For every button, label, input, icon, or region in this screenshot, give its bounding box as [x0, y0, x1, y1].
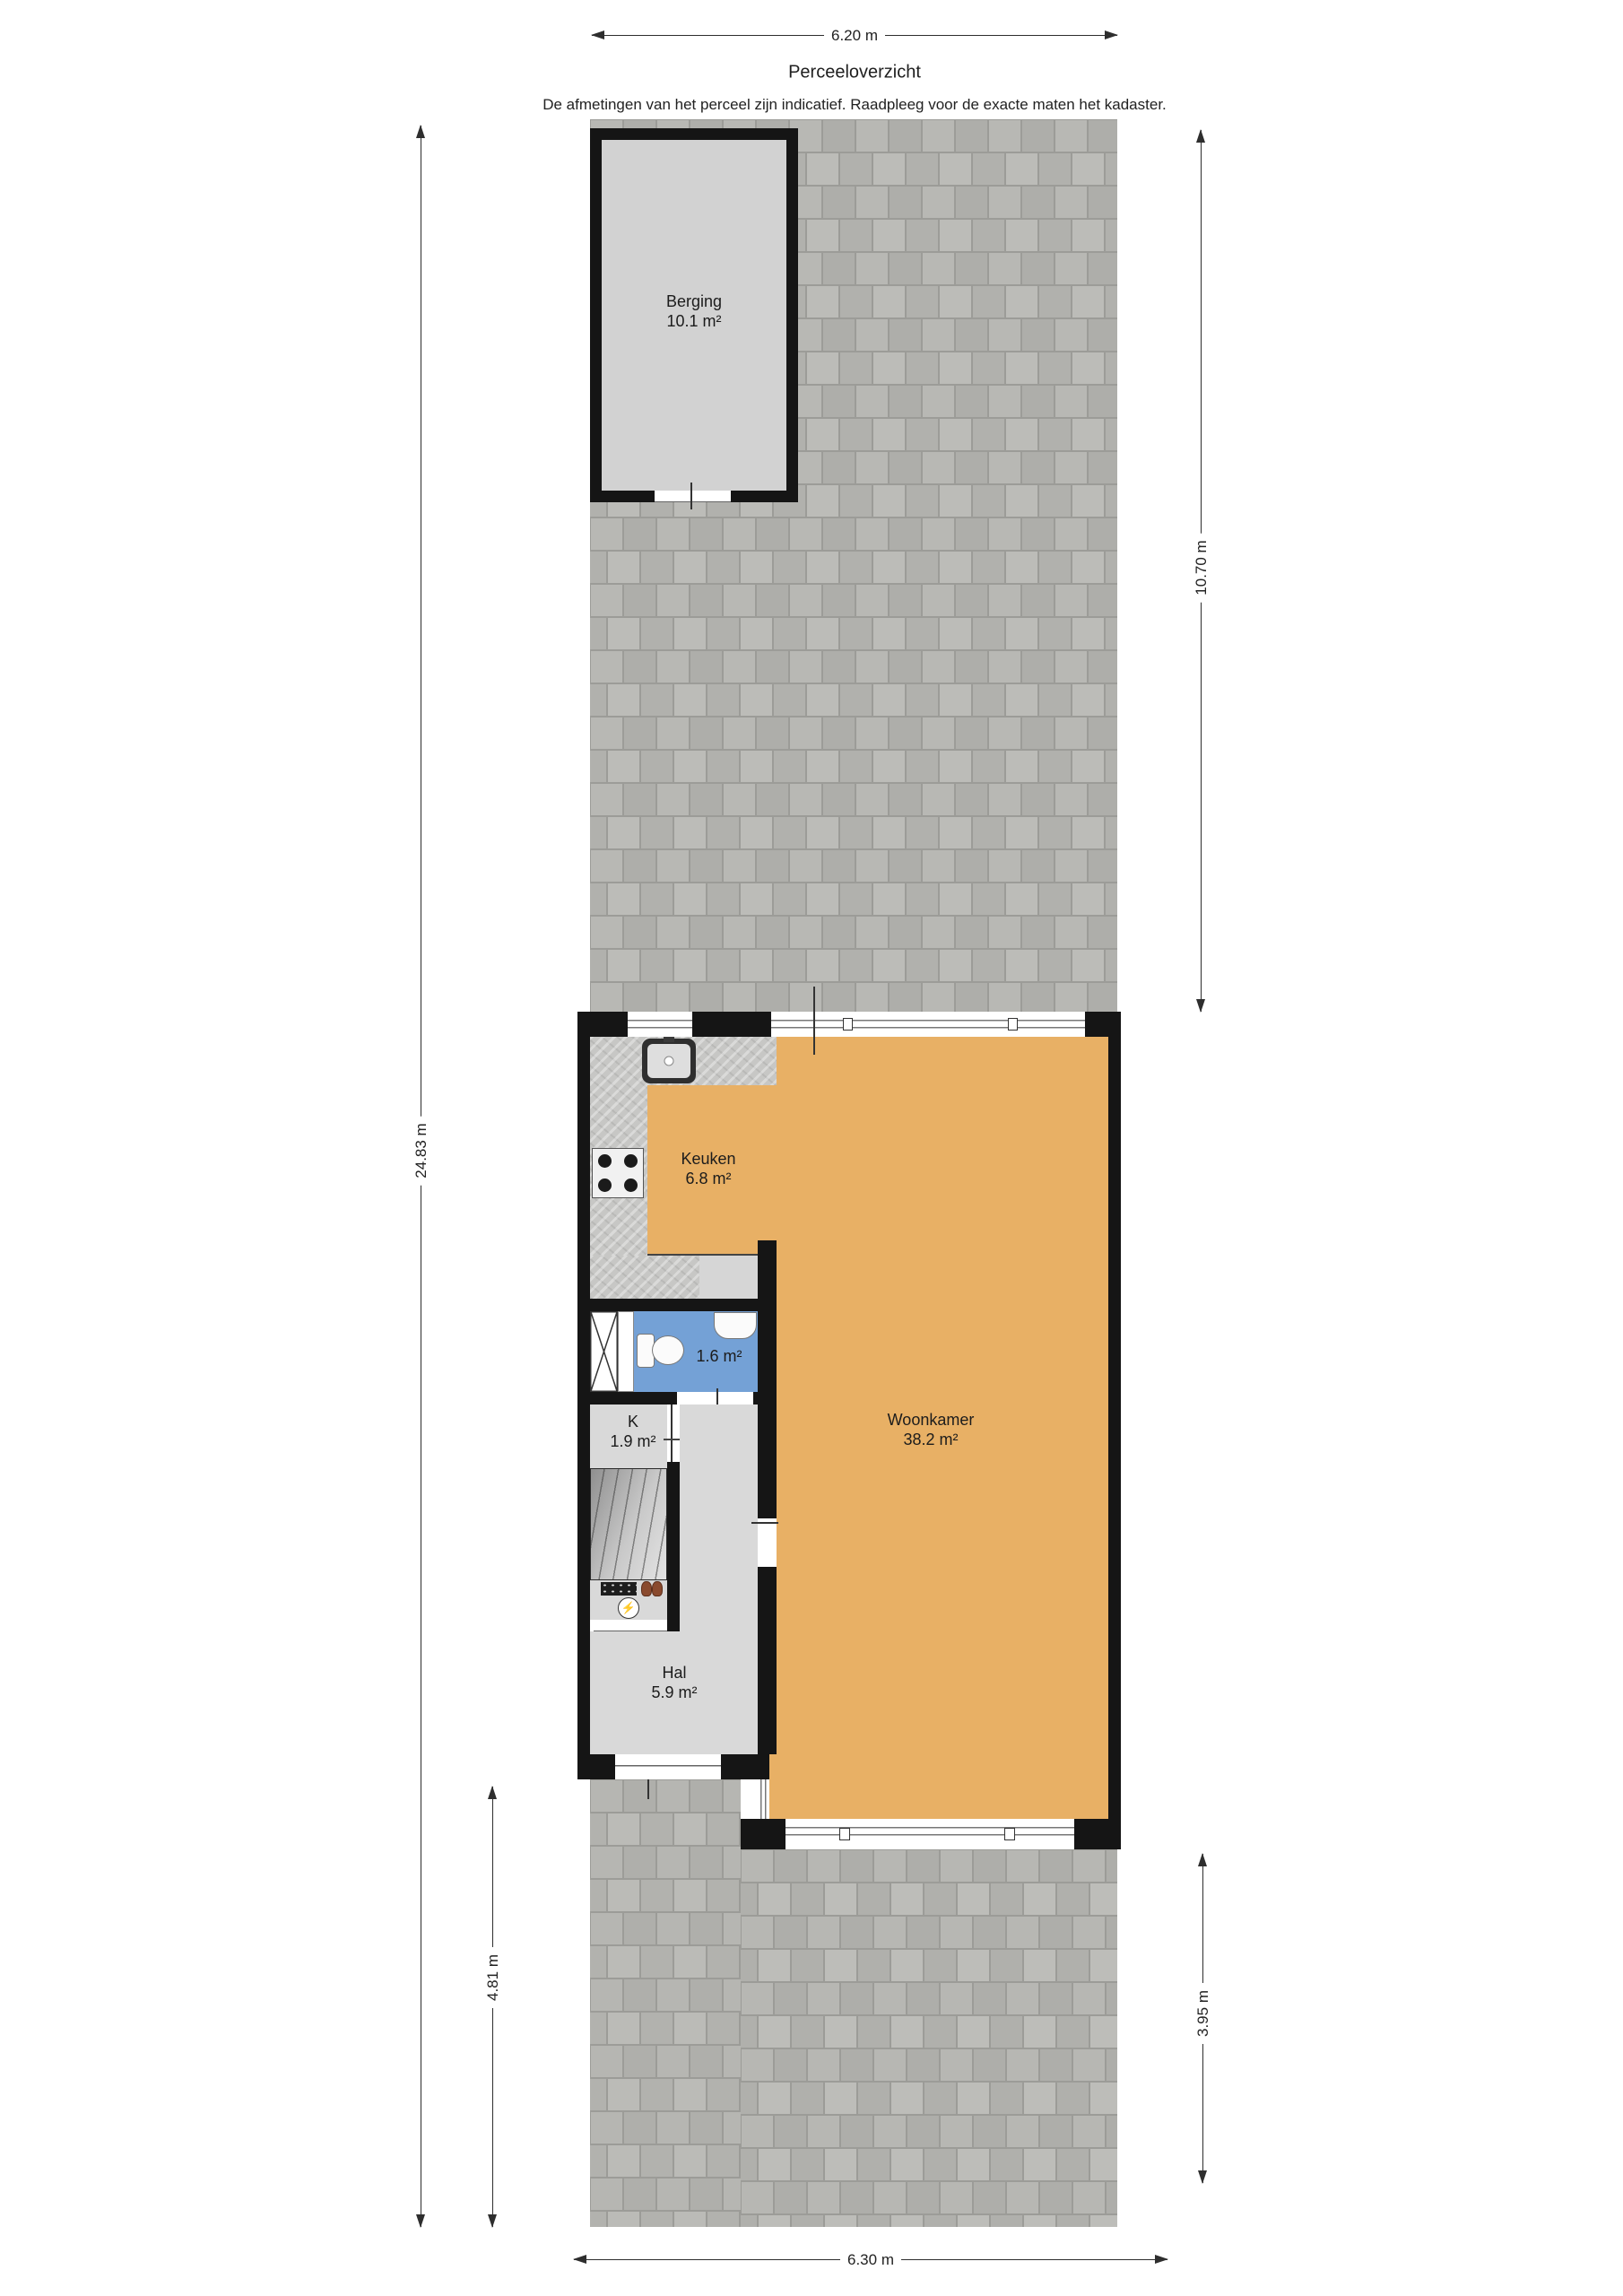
front-door-tick	[647, 1779, 649, 1799]
toilet-door-leaf	[618, 1311, 634, 1392]
dimension-label-bottom: 6.30 m	[840, 2250, 901, 2270]
kitchen-divider-pier	[758, 1240, 777, 1274]
arrowhead-up-icon	[488, 1786, 497, 1799]
side-window	[757, 1779, 769, 1819]
kast-door-leaf	[671, 1405, 673, 1462]
living-front-window	[785, 1819, 1074, 1849]
berging-label: Berging 10.1 m²	[666, 291, 722, 331]
woonkamer-name: Woonkamer	[888, 1410, 975, 1430]
meter-cupboard-door	[594, 1620, 667, 1631]
electric-meter-icon: ⚡	[618, 1597, 639, 1619]
shoes-icon	[652, 1581, 663, 1596]
page-title: Perceeloverzicht	[788, 63, 921, 83]
arrowhead-up-icon	[1198, 1853, 1207, 1866]
arrowhead-down-icon	[488, 2214, 497, 2228]
hal-area: 5.9 m²	[651, 1683, 697, 1702]
berging-door	[655, 491, 731, 502]
burner	[624, 1178, 638, 1192]
back-window-kitchen	[628, 1012, 692, 1037]
arrowhead-up-icon	[416, 125, 425, 138]
arrowhead-left-icon	[573, 2255, 586, 2264]
arrowhead-right-icon	[1155, 2255, 1168, 2264]
arrowhead-right-icon	[1105, 30, 1118, 39]
hal-woonkamer-wall	[758, 1274, 777, 1754]
toilet-bowl-icon	[652, 1335, 684, 1365]
kast-name: K	[610, 1412, 655, 1431]
left-wall	[577, 1012, 590, 1779]
woonkamer-area: 38.2 m²	[888, 1430, 975, 1449]
electric-meter-glyph: ⚡	[621, 1601, 636, 1615]
hal-woonkamer-door-tick	[751, 1522, 778, 1524]
hal-woonkamer-door-opening	[758, 1518, 777, 1567]
window-mullion	[1008, 1018, 1018, 1031]
shoes-icon	[641, 1581, 652, 1596]
berging-name: Berging	[666, 291, 722, 311]
stairs-right-wall	[667, 1462, 680, 1632]
paving-front-left	[590, 1779, 741, 2227]
arrowhead-down-icon	[416, 2214, 425, 2228]
dimension-label-top: 6.20 m	[824, 26, 885, 46]
sink-drain	[664, 1057, 674, 1066]
window-mullion	[843, 1018, 853, 1031]
dimension-label-front-left: 4.81 m	[483, 1947, 503, 2008]
keuken-area: 6.8 m²	[681, 1169, 735, 1188]
doormat-icon	[601, 1582, 637, 1596]
arrowhead-down-icon	[1198, 2170, 1207, 2184]
hal-name: Hal	[651, 1663, 697, 1683]
burner	[624, 1154, 638, 1168]
hand-basin-icon	[714, 1312, 757, 1339]
berging-area: 10.1 m²	[666, 311, 722, 331]
shaft-x-icon	[590, 1311, 618, 1392]
paving-front-right	[741, 1849, 1117, 2227]
disclaimer-text: De afmetingen van het perceel zijn indic…	[542, 96, 1167, 114]
kitchen-counter-bottom	[590, 1256, 699, 1299]
front-door	[615, 1754, 721, 1779]
berging-door-tick	[690, 483, 692, 509]
kast-area: 1.9 m²	[610, 1431, 655, 1451]
woonkamer-label: Woonkamer 38.2 m²	[888, 1410, 975, 1449]
toilet-label: 1.6 m²	[696, 1346, 742, 1366]
dimension-label-front-right: 3.95 m	[1193, 1983, 1213, 2044]
burner	[598, 1154, 612, 1168]
burner	[598, 1178, 612, 1192]
hal-label: Hal 5.9 m²	[651, 1663, 697, 1702]
staircase	[590, 1468, 667, 1580]
keuken-name: Keuken	[681, 1149, 735, 1169]
back-window-living	[771, 1012, 1085, 1037]
dimension-label-right: 10.70 m	[1192, 533, 1211, 602]
kitchen-sink-icon	[642, 1039, 696, 1083]
arrowhead-up-icon	[1196, 129, 1205, 143]
window-mullion	[1004, 1828, 1015, 1840]
window-mullion	[839, 1828, 850, 1840]
toilet-door-opening	[677, 1392, 753, 1405]
arrowhead-left-icon	[591, 30, 604, 39]
toilet-top-wall	[590, 1299, 777, 1311]
keuken-label: Keuken 6.8 m²	[681, 1149, 735, 1188]
sink-basin	[647, 1044, 690, 1078]
stove-icon	[592, 1148, 644, 1198]
vestibule-strip-floor	[699, 1256, 758, 1299]
floor-plan-page: 6.20 m Perceeloverzicht De afmetingen va…	[0, 0, 1623, 2296]
kast-label: K 1.9 m²	[610, 1412, 655, 1451]
back-window-tick	[813, 987, 815, 1055]
kitchen-divider-line	[647, 1254, 758, 1256]
dimension-label-left: 24.83 m	[412, 1116, 431, 1185]
arrowhead-down-icon	[1196, 999, 1205, 1013]
right-wall	[1108, 1012, 1121, 1849]
toilet-area: 1.6 m²	[696, 1346, 742, 1366]
